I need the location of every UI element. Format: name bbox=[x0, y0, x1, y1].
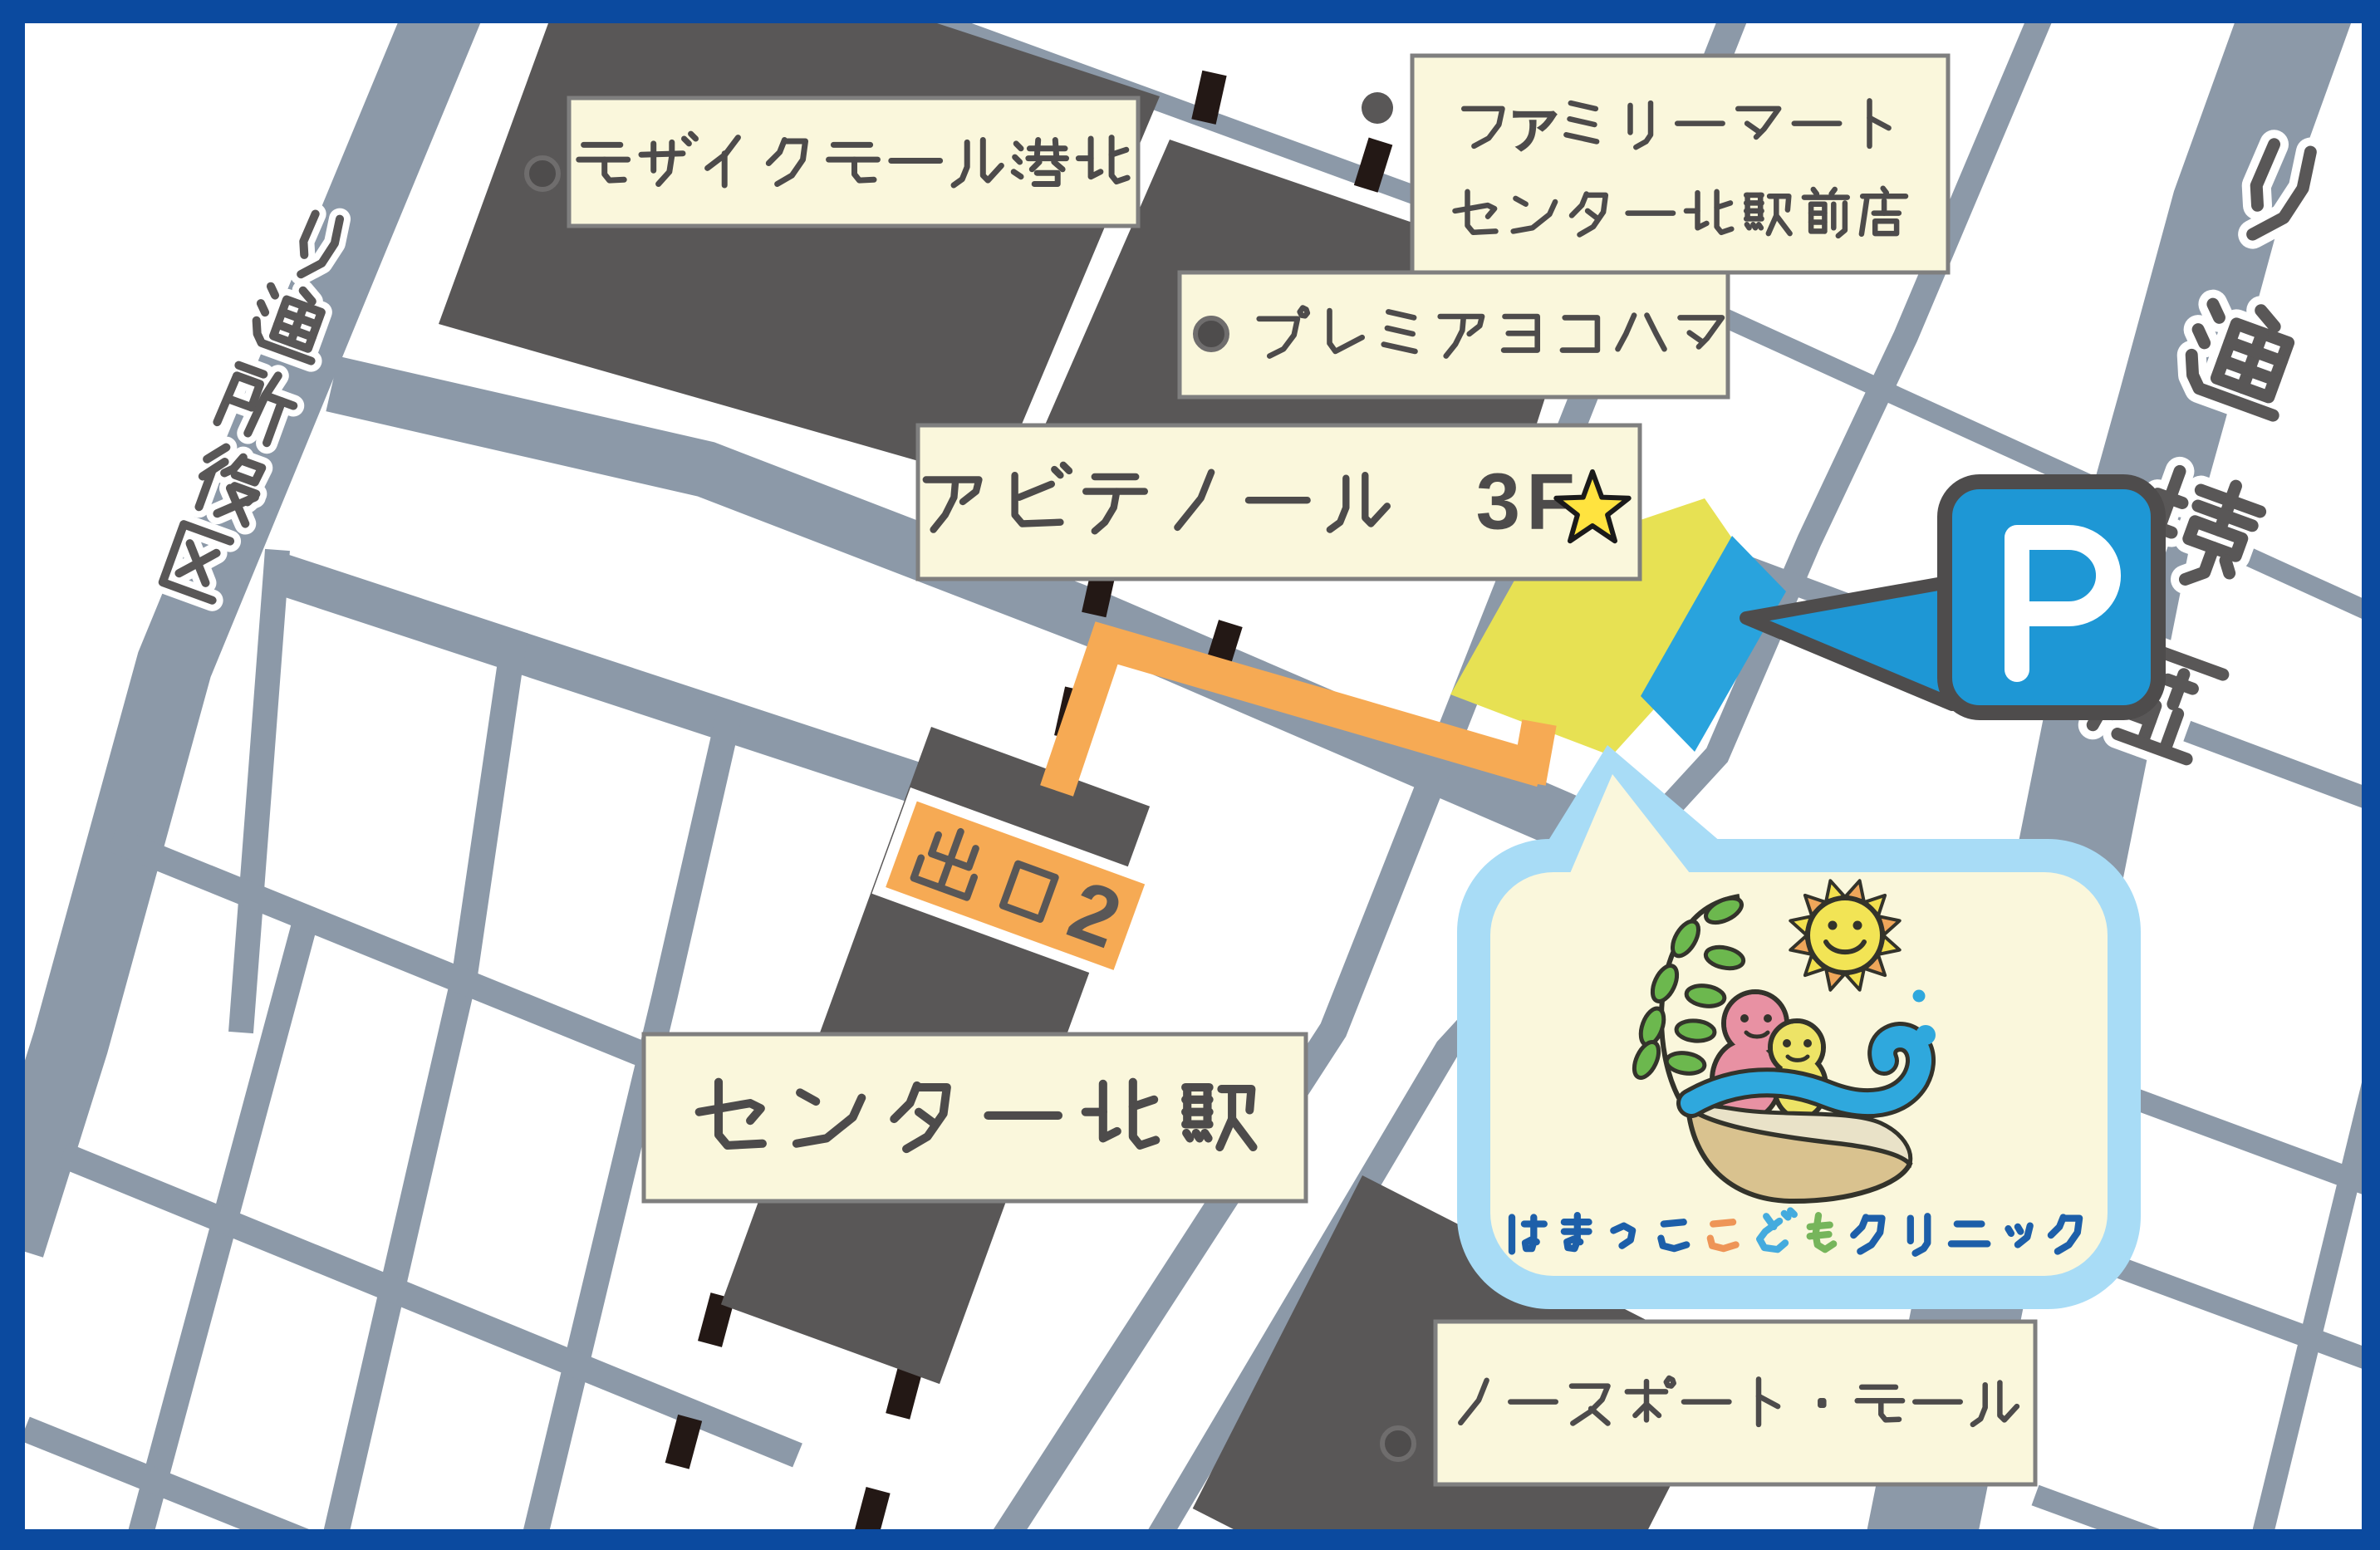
svg-text:3: 3 bbox=[1476, 458, 1520, 547]
svg-text:ァ: ァ bbox=[1503, 90, 1564, 159]
